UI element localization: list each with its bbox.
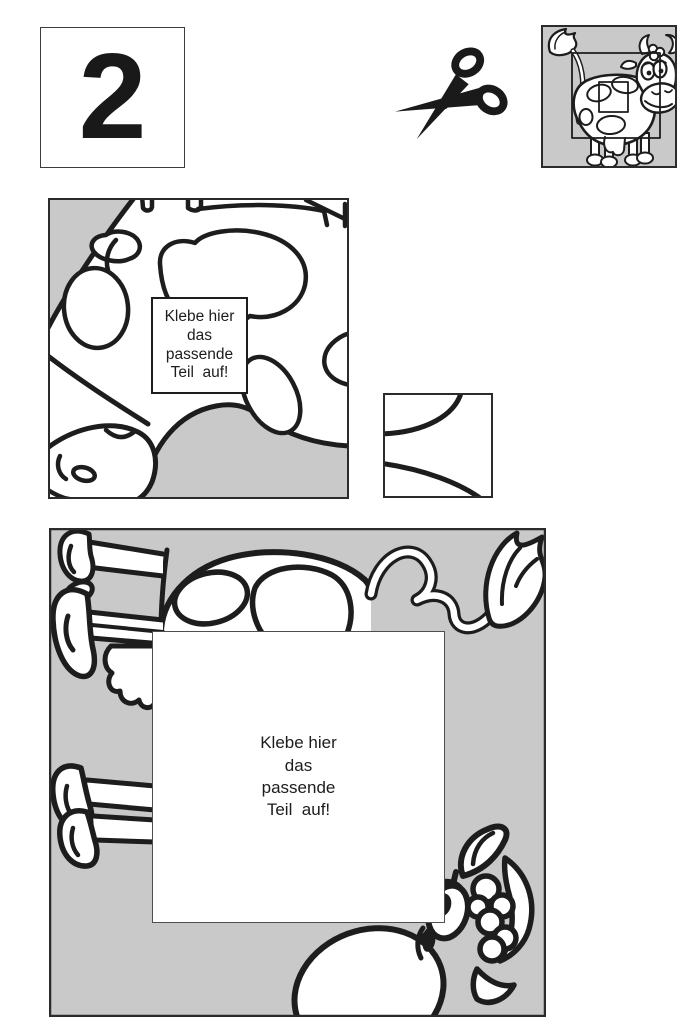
puzzle-piece-cutout — [383, 393, 493, 498]
page-number: 2 — [79, 35, 147, 157]
puzzle-piece-svg — [383, 393, 493, 498]
glue-instruction-label: Klebe hier das passende Teil auf! — [151, 297, 248, 394]
scissors-icon — [393, 42, 511, 148]
glue-instruction-line: Teil auf! — [267, 799, 330, 821]
page-number-card: 2 — [40, 27, 185, 168]
glue-placeholder-square: Klebe hier das passende Teil auf! — [152, 631, 445, 923]
cow-reference-svg — [541, 25, 677, 168]
glue-instruction-line: passende — [166, 346, 233, 365]
glue-instruction-line: Klebe hier — [165, 308, 235, 327]
scissors-icon-svg — [393, 42, 511, 148]
glue-instruction-line: das — [187, 327, 212, 346]
cow-reference-thumbnail — [541, 25, 677, 168]
worksheet-page: 2 — [0, 0, 686, 1024]
glue-instruction-line: Klebe hier — [260, 732, 337, 754]
glue-instruction-line: Teil auf! — [171, 364, 229, 383]
glue-instruction-line: das — [285, 755, 312, 777]
glue-instruction-line: passende — [262, 777, 336, 799]
